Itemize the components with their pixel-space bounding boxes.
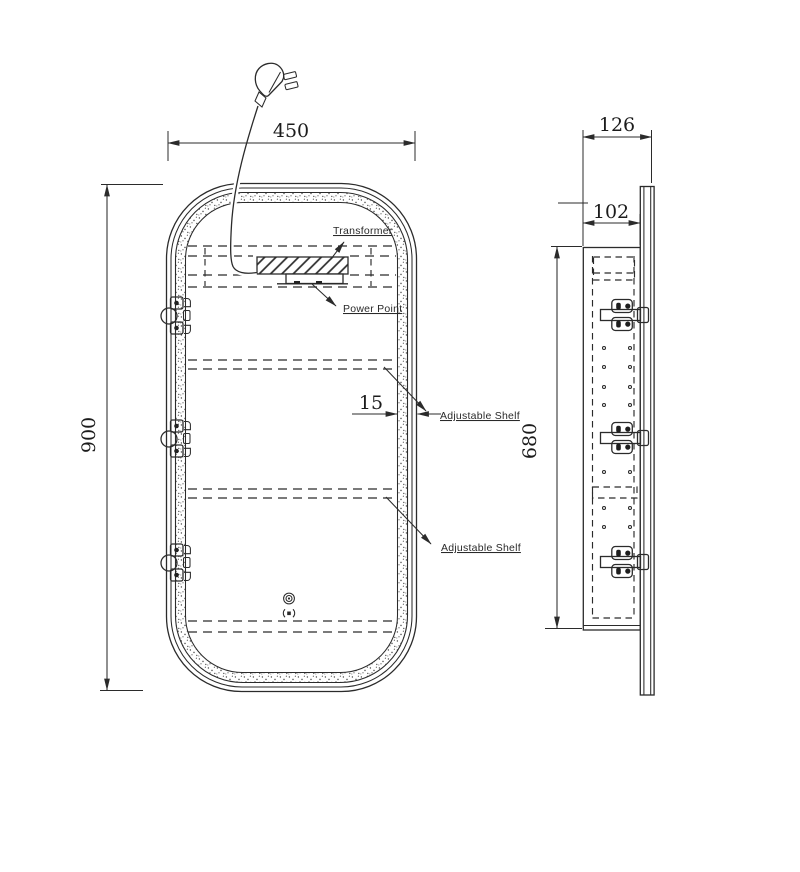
dimension-text: 450 (273, 120, 309, 142)
dim-102: 102 (583, 201, 640, 245)
dim-680: 680 (519, 247, 582, 629)
power-point-pin (294, 281, 300, 284)
technical-drawing-canvas: 450 900 15 Transformer Power Point Adjus… (0, 0, 800, 872)
dimension-text: 102 (593, 201, 629, 223)
dim-900: 900 (78, 185, 163, 691)
plug-prong (283, 72, 296, 80)
dimension-text: 680 (519, 423, 541, 459)
drawing-page: 450 900 15 Transformer Power Point Adjus… (0, 0, 800, 872)
adjustable-shelf-label-2: Adjustable Shelf (441, 542, 521, 554)
dimension-text: 15 (359, 392, 383, 414)
front-view: 450 900 15 Transformer Power Point Adjus… (78, 63, 521, 691)
adjustable-shelf-label-1: Adjustable Shelf (440, 410, 520, 422)
dimension-text: 126 (599, 114, 635, 136)
dim-450: 450 (168, 120, 415, 161)
plug-prong (285, 82, 298, 90)
transformer-box (257, 257, 348, 274)
power-point-pin (316, 281, 322, 284)
power-point-label: Power Point (343, 303, 402, 315)
side-view: 126 102 680 (519, 114, 654, 695)
side-door-panel (640, 187, 654, 696)
dimension-text: 900 (78, 417, 100, 453)
transformer-label: Transformer (333, 225, 393, 237)
